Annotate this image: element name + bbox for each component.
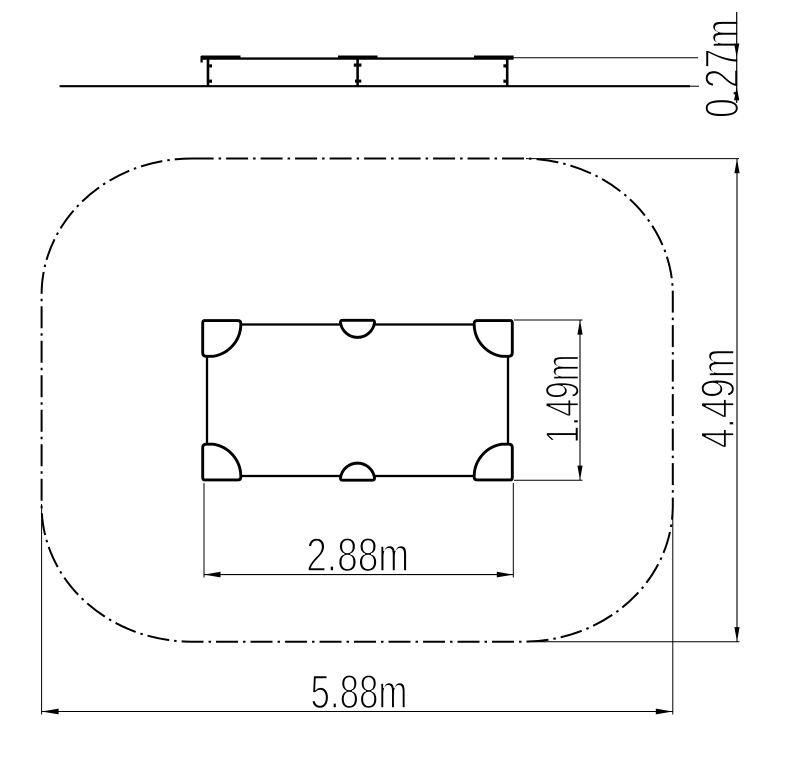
svg-text:4.49m: 4.49m <box>691 348 744 448</box>
svg-text:2.88m: 2.88m <box>306 528 409 581</box>
svg-text:0.27m: 0.27m <box>695 19 748 118</box>
svg-text:5.88m: 5.88m <box>311 665 408 718</box>
